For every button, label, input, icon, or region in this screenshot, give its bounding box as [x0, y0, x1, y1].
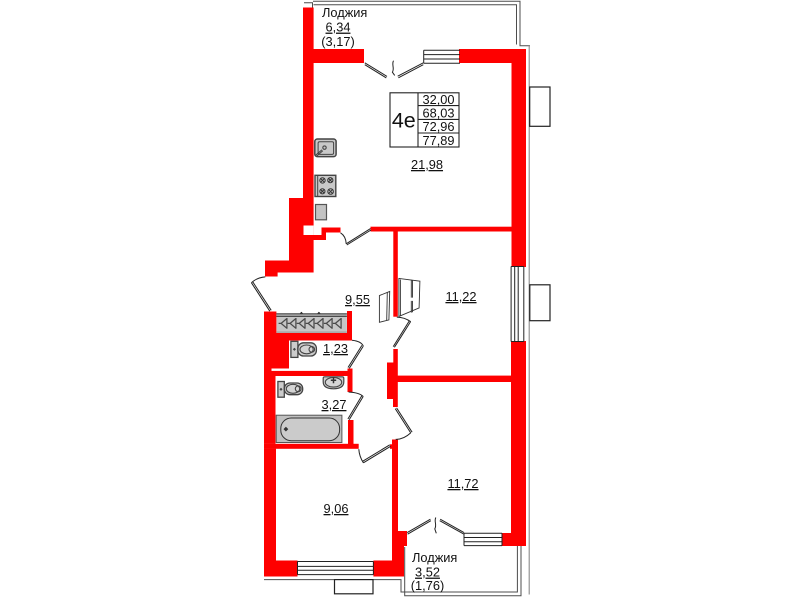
- svg-text:(1,76): (1,76): [411, 578, 444, 593]
- svg-text:11,72: 11,72: [447, 476, 478, 491]
- svg-text:77,89: 77,89: [422, 133, 454, 148]
- svg-text:(3,17): (3,17): [321, 34, 354, 49]
- svg-text:3,27: 3,27: [322, 397, 347, 412]
- svg-text:Лоджия: Лоджия: [412, 550, 457, 565]
- svg-text:4е: 4е: [392, 109, 416, 133]
- svg-text:11,22: 11,22: [445, 289, 476, 304]
- svg-text:1,23: 1,23: [323, 341, 348, 356]
- svg-text:9,55: 9,55: [345, 292, 370, 307]
- svg-text:9,06: 9,06: [324, 501, 349, 516]
- svg-text:Лоджия: Лоджия: [322, 5, 367, 20]
- svg-text:72,96: 72,96: [422, 119, 454, 134]
- svg-text:6,34: 6,34: [326, 20, 351, 35]
- svg-text:21,98: 21,98: [411, 157, 443, 172]
